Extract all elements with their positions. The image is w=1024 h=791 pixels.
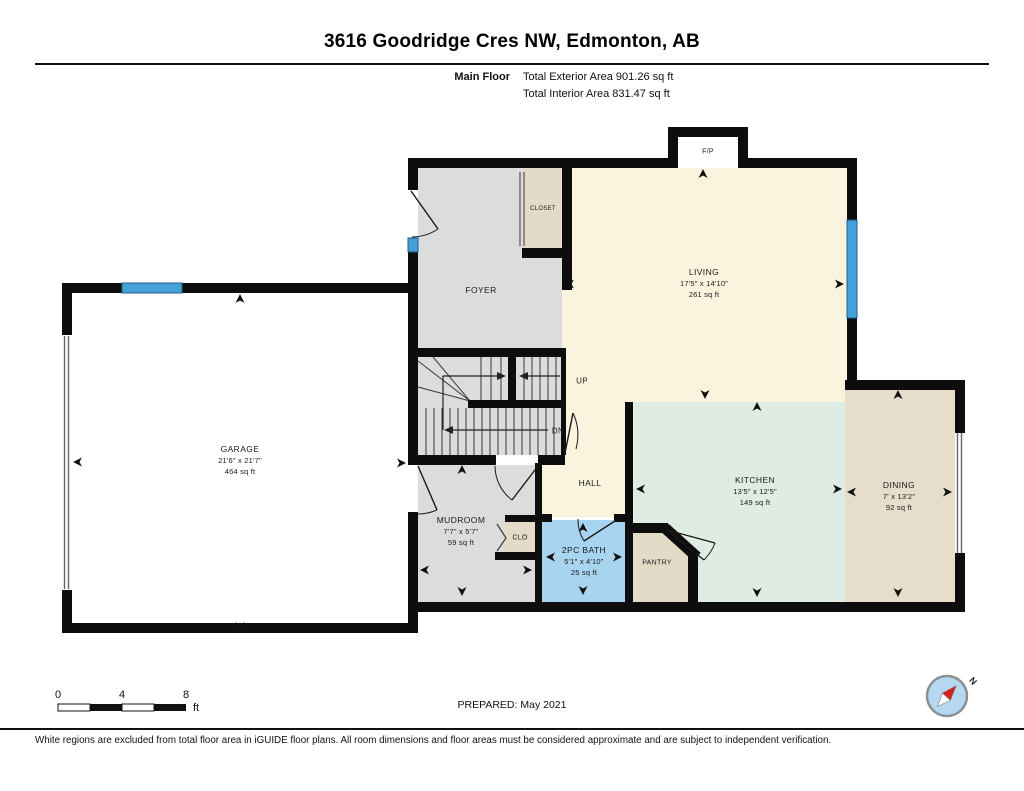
dining-window: [955, 433, 965, 553]
pantry-label: PANTRY: [642, 560, 672, 567]
room-name: LIVING: [680, 268, 728, 277]
fireplace-label: F/P: [702, 149, 714, 156]
room-name: KITCHEN: [733, 476, 777, 485]
scale-unit: ft: [193, 702, 199, 714]
stairs-dn-label: DN: [552, 427, 564, 436]
room-area: 92 sq ft: [883, 504, 915, 512]
room-label-hall: HALL: [579, 479, 602, 488]
room-dims: 7' x 13'2": [883, 493, 915, 501]
closet-label: CLOSET: [530, 206, 556, 212]
disclaimer-text: White regions are excluded from total fl…: [35, 735, 995, 746]
scale-tick-0: 0: [55, 689, 61, 701]
room-name: MUDROOM: [437, 516, 486, 525]
stairs-up-label: UP: [576, 377, 588, 386]
header-divider: [35, 63, 989, 65]
compass-icon: [927, 676, 967, 716]
room-dims: 5'1" x 4'10": [562, 558, 606, 566]
room-fill-hall: [566, 402, 625, 455]
room-label-bath: 2PC BATH 5'1" x 4'10" 25 sq ft: [562, 546, 606, 577]
room-name: DINING: [883, 481, 915, 490]
room-name: FOYER: [465, 286, 496, 295]
foyer-window: [408, 238, 418, 252]
room-label-living: LIVING 17'5" x 14'10" 261 sq ft: [680, 268, 728, 299]
footer-divider: [0, 728, 1024, 730]
room-label-foyer: FOYER: [465, 286, 496, 295]
room-area: 59 sq ft: [437, 539, 486, 547]
exterior-area: Total Exterior Area 901.26 sq ft: [523, 71, 673, 83]
room-dims: 21'6" x 21'7": [218, 457, 262, 465]
room-label-mudroom: MUDROOM 7'7" x 5'7" 59 sq ft: [437, 516, 486, 547]
scale-tick-4: 4: [119, 689, 125, 701]
room-name: 2PC BATH: [562, 546, 606, 555]
room-label-dining: DINING 7' x 13'2" 92 sq ft: [883, 481, 915, 512]
page-title: 3616 Goodridge Cres NW, Edmonton, AB: [0, 31, 1024, 53]
room-area: 25 sq ft: [562, 569, 606, 577]
scale-bar: [58, 704, 186, 711]
room-area: 464 sq ft: [218, 468, 262, 476]
room-dims: 7'7" x 5'7": [437, 528, 486, 536]
living-window: [847, 220, 857, 318]
garage-door-overhead: [62, 335, 72, 590]
room-area: 149 sq ft: [733, 499, 777, 507]
floor-label: Main Floor: [360, 71, 510, 83]
room-dims: 13'5" x 12'5": [733, 488, 777, 496]
room-area: 261 sq ft: [680, 291, 728, 299]
floor-plan-drawing: [0, 0, 1024, 791]
clo-label: CLO: [512, 535, 527, 542]
room-dims: 17'5" x 14'10": [680, 280, 728, 288]
room-fill-living: [562, 290, 847, 402]
scale-tick-8: 8: [183, 689, 189, 701]
room-label-garage: GARAGE 21'6" x 21'7" 464 sq ft: [218, 445, 262, 476]
prepared-date: PREPARED: May 2021: [458, 699, 567, 711]
room-name: GARAGE: [218, 445, 262, 454]
floorplan-page: 3616 Goodridge Cres NW, Edmonton, AB Mai…: [0, 0, 1024, 791]
interior-area: Total Interior Area 831.47 sq ft: [523, 88, 670, 100]
room-label-kitchen: KITCHEN 13'5" x 12'5" 149 sq ft: [733, 476, 777, 507]
room-name: HALL: [579, 479, 602, 488]
garage-window: [122, 283, 182, 293]
